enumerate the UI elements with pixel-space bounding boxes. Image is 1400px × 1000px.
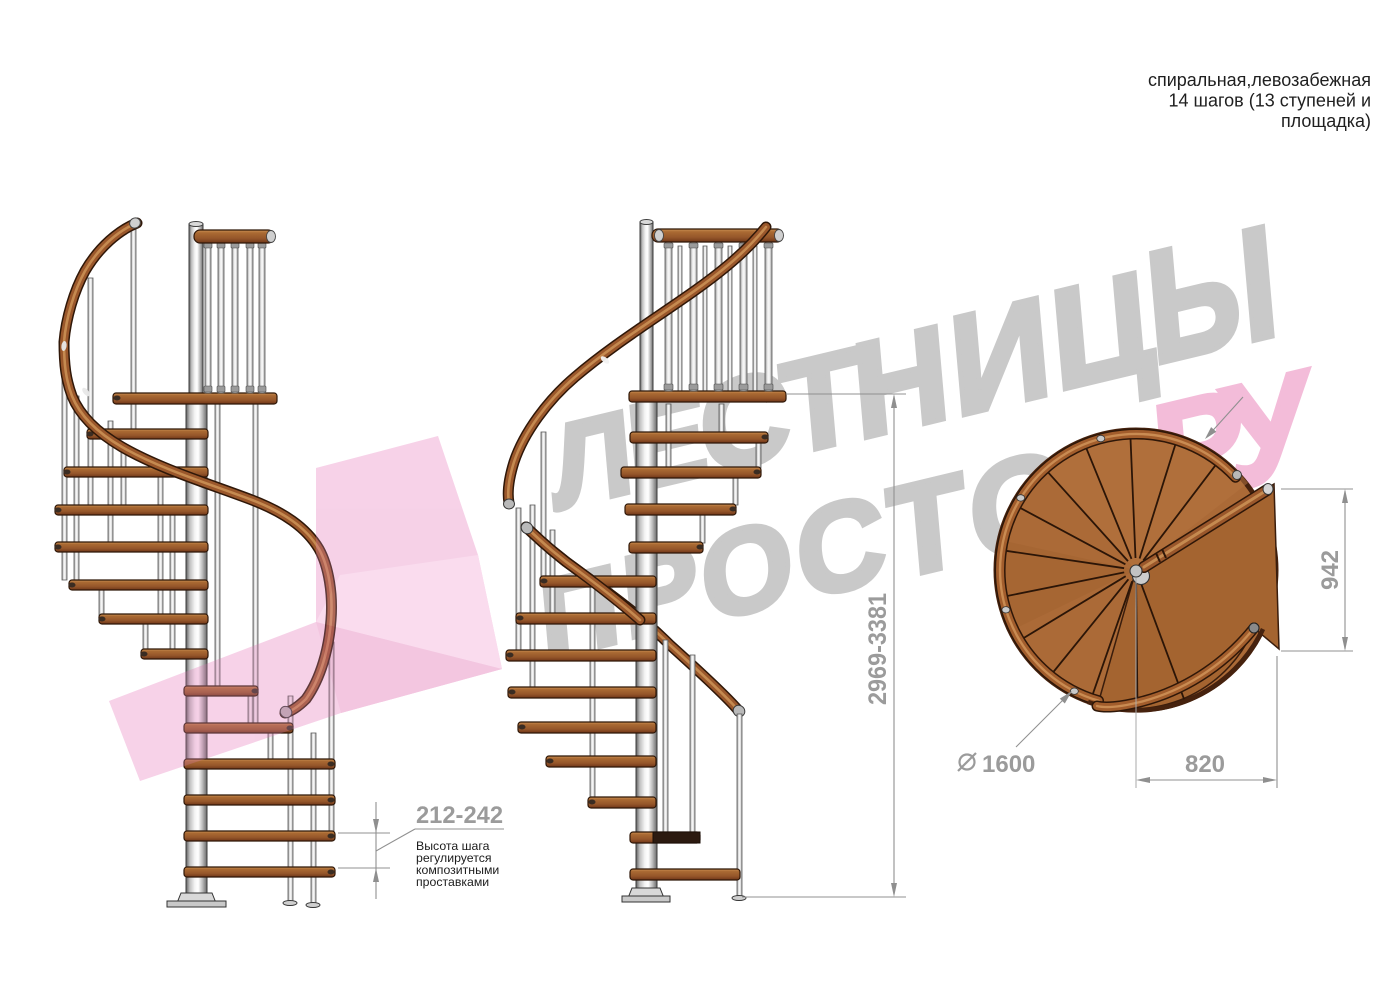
- svg-text:площадка): площадка): [1281, 111, 1371, 131]
- svg-text:спиральная,левозабежная: спиральная,левозабежная: [1148, 70, 1371, 90]
- svg-text:14 шагов (13 ступеней и: 14 шагов (13 ступеней и: [1169, 91, 1372, 111]
- svg-text:И: И: [944, 266, 1057, 448]
- svg-text:проставками: проставками: [416, 875, 489, 889]
- svg-text:Н: Н: [847, 295, 955, 468]
- svg-text:212-242: 212-242: [416, 802, 503, 829]
- svg-text:942: 942: [1317, 550, 1344, 590]
- svg-text:Ц: Ц: [1045, 239, 1160, 422]
- svg-text:1600: 1600: [982, 751, 1035, 778]
- svg-text:2969-3381: 2969-3381: [864, 593, 892, 705]
- svg-text:820: 820: [1185, 751, 1225, 778]
- svg-text:Т: Т: [882, 444, 972, 608]
- svg-text:П: П: [535, 541, 624, 684]
- svg-text:О: О: [696, 493, 798, 648]
